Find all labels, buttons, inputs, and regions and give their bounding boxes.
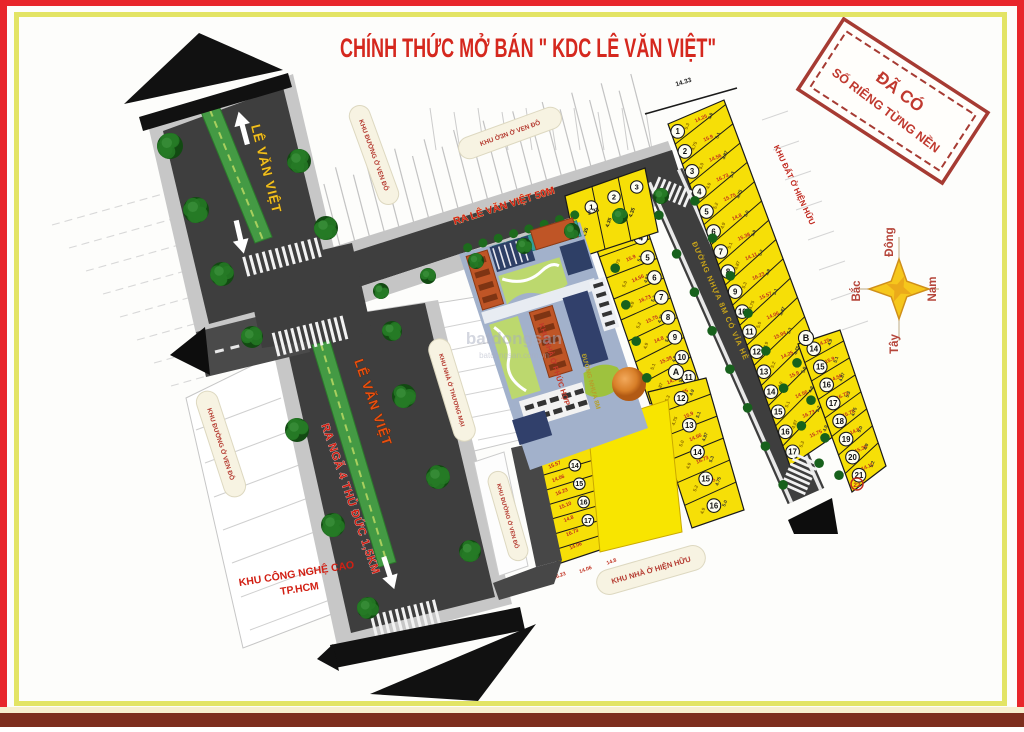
svg-text:2: 2	[683, 147, 688, 156]
svg-text:14: 14	[767, 388, 776, 397]
svg-text:15: 15	[816, 363, 825, 372]
svg-text:22: 22	[853, 482, 861, 489]
svg-text:12: 12	[752, 348, 761, 357]
svg-text:Bắc: Bắc	[850, 280, 863, 302]
svg-text:13: 13	[685, 421, 694, 430]
svg-text:Tây: Tây	[889, 333, 901, 353]
svg-text:18: 18	[835, 417, 844, 426]
svg-text:10: 10	[677, 353, 686, 362]
svg-text:19: 19	[842, 435, 851, 444]
svg-text:14: 14	[809, 345, 818, 354]
svg-text:14: 14	[693, 448, 702, 457]
svg-text:3: 3	[690, 167, 695, 176]
svg-text:A: A	[673, 367, 680, 377]
svg-text:batdongsan.com.vn: batdongsan.com.vn	[479, 351, 549, 360]
svg-text:16: 16	[710, 501, 719, 510]
svg-text:15: 15	[774, 408, 783, 417]
svg-text:16: 16	[781, 428, 790, 437]
svg-text:12: 12	[677, 394, 686, 403]
svg-text:5: 5	[704, 207, 709, 216]
svg-text:16: 16	[822, 381, 831, 390]
svg-text:15: 15	[575, 481, 583, 488]
svg-text:11: 11	[684, 373, 693, 382]
svg-text:5: 5	[645, 253, 650, 262]
svg-text:4: 4	[697, 187, 702, 196]
svg-text:7: 7	[719, 247, 723, 256]
svg-text:11: 11	[745, 328, 754, 337]
svg-text:Nam: Nam	[927, 277, 939, 302]
svg-text:13: 13	[760, 368, 769, 377]
svg-text:15: 15	[701, 475, 710, 484]
svg-text:batdongsan: batdongsan	[466, 329, 562, 348]
svg-text:6: 6	[652, 273, 657, 282]
svg-text:20: 20	[848, 453, 857, 462]
svg-text:9: 9	[673, 333, 678, 342]
svg-text:2: 2	[612, 193, 616, 202]
svg-text:B: B	[803, 333, 810, 343]
svg-text:17: 17	[829, 399, 838, 408]
svg-text:17: 17	[584, 518, 592, 525]
svg-text:7: 7	[659, 293, 663, 302]
svg-text:8: 8	[666, 313, 671, 322]
svg-text:3: 3	[635, 183, 639, 192]
svg-text:14: 14	[571, 463, 579, 470]
svg-text:9: 9	[733, 287, 738, 296]
svg-text:1: 1	[676, 127, 681, 136]
svg-text:CHÍNH THỨC MỞ BÁN " KDC LÊ VĂN: CHÍNH THỨC MỞ BÁN " KDC LÊ VĂN VIỆT"	[340, 31, 716, 63]
svg-text:16: 16	[580, 500, 588, 507]
svg-text:Đông: Đông	[884, 227, 896, 256]
